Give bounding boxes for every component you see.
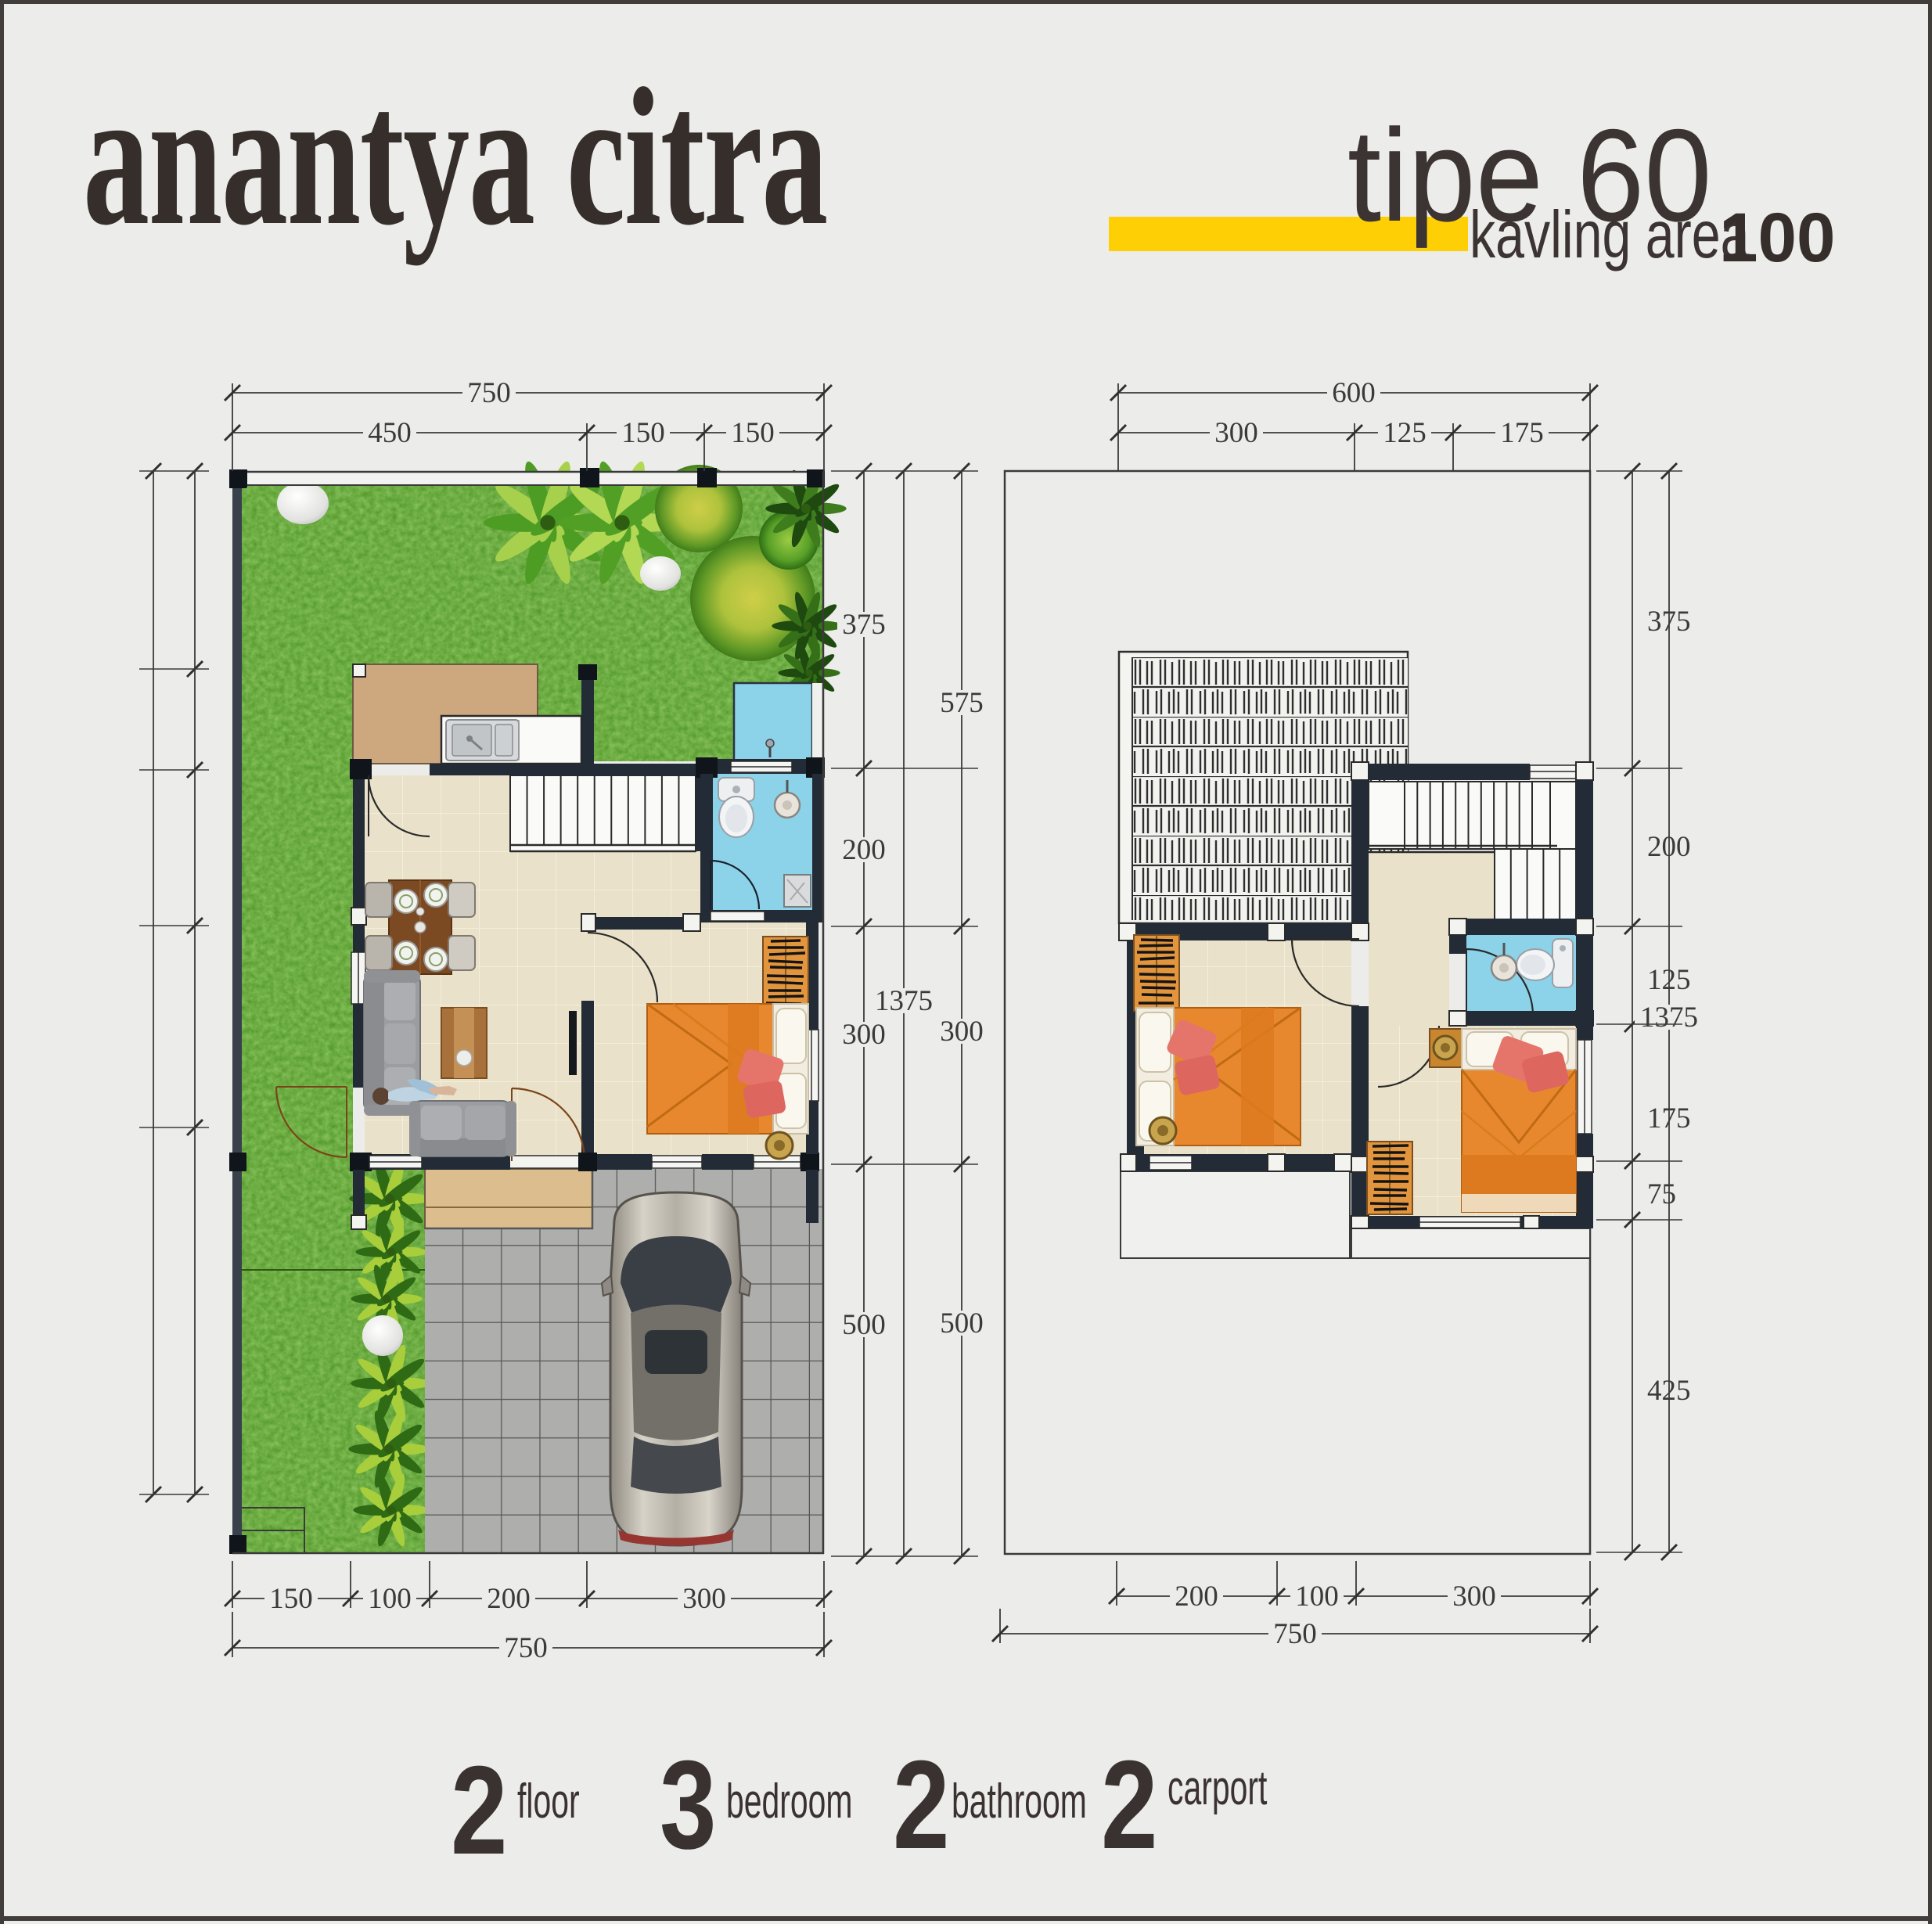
svg-text:750: 750 bbox=[504, 1632, 548, 1664]
svg-text:125: 125 bbox=[1383, 417, 1427, 449]
svg-text:375: 375 bbox=[842, 609, 886, 641]
svg-text:200: 200 bbox=[1175, 1581, 1218, 1613]
svg-text:300: 300 bbox=[940, 1016, 984, 1048]
svg-text:300: 300 bbox=[842, 1019, 886, 1051]
svg-text:150: 150 bbox=[269, 1583, 313, 1615]
svg-text:100: 100 bbox=[1295, 1581, 1339, 1613]
svg-text:200: 200 bbox=[487, 1583, 531, 1615]
svg-text:75: 75 bbox=[1647, 1178, 1676, 1210]
svg-text:300: 300 bbox=[682, 1583, 726, 1615]
svg-text:750: 750 bbox=[1273, 1618, 1317, 1650]
svg-text:500: 500 bbox=[842, 1309, 886, 1341]
svg-text:500: 500 bbox=[940, 1307, 984, 1340]
svg-text:750: 750 bbox=[467, 377, 511, 409]
svg-text:150: 150 bbox=[731, 417, 775, 449]
svg-text:450: 450 bbox=[368, 417, 412, 449]
svg-text:175: 175 bbox=[1500, 417, 1544, 449]
svg-text:1375: 1375 bbox=[1640, 1002, 1698, 1034]
svg-text:200: 200 bbox=[842, 834, 886, 866]
svg-text:300: 300 bbox=[1214, 417, 1258, 449]
svg-text:100: 100 bbox=[368, 1583, 412, 1615]
svg-text:1375: 1375 bbox=[875, 985, 933, 1017]
svg-text:150: 150 bbox=[621, 417, 665, 449]
svg-text:300: 300 bbox=[1452, 1581, 1496, 1613]
svg-text:600: 600 bbox=[1332, 377, 1376, 409]
svg-text:575: 575 bbox=[940, 687, 984, 719]
